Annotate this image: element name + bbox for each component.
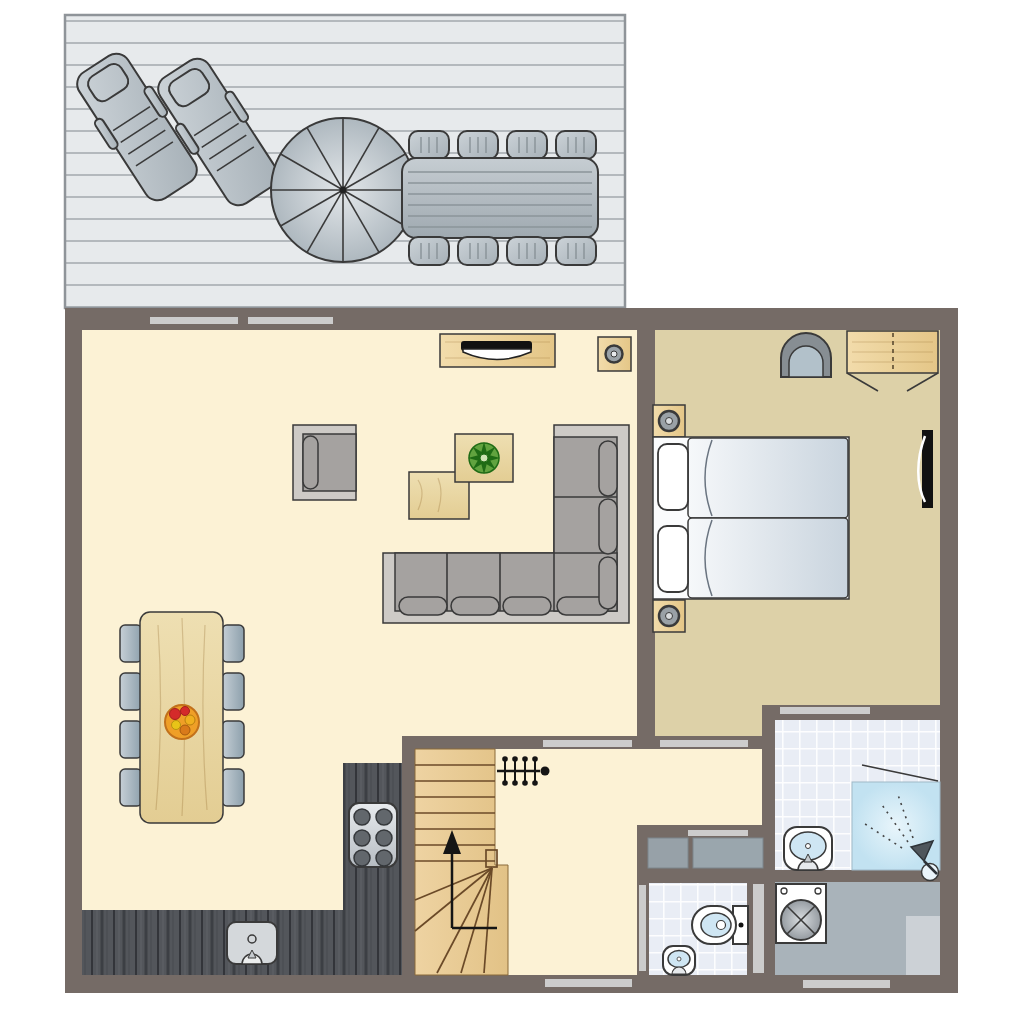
storage-closet-1 <box>648 838 688 868</box>
outdoor-chair <box>409 131 449 159</box>
dining-chair <box>120 721 142 758</box>
dining-chair <box>222 625 244 662</box>
outdoor-chair <box>458 131 498 159</box>
outdoor-chair <box>556 237 596 265</box>
outdoor-chair <box>507 131 547 159</box>
plant-table <box>455 434 513 482</box>
door-wc <box>639 885 646 971</box>
speaker <box>598 337 631 371</box>
dining-chair <box>222 673 244 710</box>
tv-cabinet <box>440 334 555 367</box>
outdoor-chair <box>409 237 449 265</box>
washing-machine <box>776 884 826 943</box>
dining-chair <box>222 769 244 806</box>
dining-chair <box>120 625 142 662</box>
front-door <box>545 979 632 987</box>
outdoor-dining-table <box>402 158 598 238</box>
storage-closet-2 <box>693 838 763 868</box>
window-top-1 <box>150 317 238 324</box>
bathroom-sink <box>784 827 832 870</box>
window-top-2 <box>248 317 333 324</box>
nightstand-bottom <box>653 600 685 632</box>
dining-chair <box>120 769 142 806</box>
outdoor-chair <box>556 131 596 159</box>
pillow <box>658 444 688 510</box>
deck <box>65 15 625 308</box>
double-bed <box>653 437 849 599</box>
door-living-hall <box>543 740 632 747</box>
armchair <box>293 425 356 500</box>
fruit-bowl <box>165 705 199 739</box>
dining-chair <box>222 721 244 758</box>
wc-sink <box>663 946 695 975</box>
door-closet <box>688 830 748 836</box>
dining-chair <box>120 673 142 710</box>
kitchen-sink <box>227 922 277 964</box>
floor-mat <box>906 916 940 975</box>
stairs <box>415 749 508 975</box>
bedroom-chair <box>781 333 831 377</box>
outdoor-chair <box>458 237 498 265</box>
stove <box>349 803 397 867</box>
door-bedroom-bathroom <box>780 707 870 714</box>
door-bedroom-hall <box>660 740 748 747</box>
pillow <box>658 526 688 592</box>
floor-plan-canvas <box>0 0 1024 1024</box>
parasol <box>271 118 415 262</box>
kitchen-counter-side <box>343 763 402 975</box>
toilet <box>692 906 748 944</box>
floor-plan <box>0 0 1024 1024</box>
outdoor-chair <box>507 237 547 265</box>
utility-exterior-door <box>803 980 890 988</box>
shower <box>852 765 940 881</box>
potted-plant <box>468 442 500 474</box>
door-wc-utility <box>753 884 764 973</box>
nightstand-top <box>653 405 685 437</box>
